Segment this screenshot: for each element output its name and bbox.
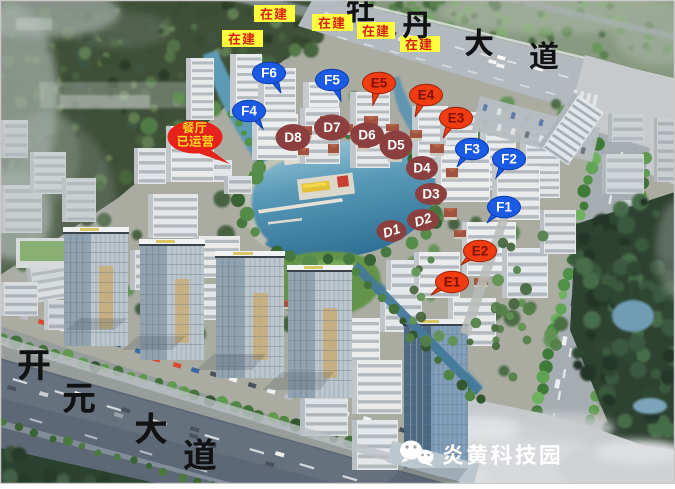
- svg-text:F4: F4: [241, 104, 257, 119]
- svg-text:D6: D6: [358, 128, 376, 143]
- svg-text:E1: E1: [444, 275, 461, 290]
- svg-text:D8: D8: [284, 130, 302, 145]
- svg-text:F1: F1: [496, 200, 512, 215]
- svg-text:D7: D7: [323, 120, 340, 135]
- svg-text:F2: F2: [501, 152, 517, 167]
- svg-text:F3: F3: [464, 142, 480, 157]
- svg-text:F5: F5: [324, 73, 340, 88]
- svg-text:E5: E5: [371, 76, 388, 91]
- svg-text:D4: D4: [413, 161, 431, 176]
- svg-text:E2: E2: [472, 244, 489, 259]
- svg-text:E4: E4: [418, 88, 435, 103]
- svg-text:F6: F6: [261, 66, 277, 81]
- svg-text:E3: E3: [448, 111, 465, 126]
- svg-text:D5: D5: [387, 138, 405, 153]
- svg-text:D3: D3: [422, 187, 440, 202]
